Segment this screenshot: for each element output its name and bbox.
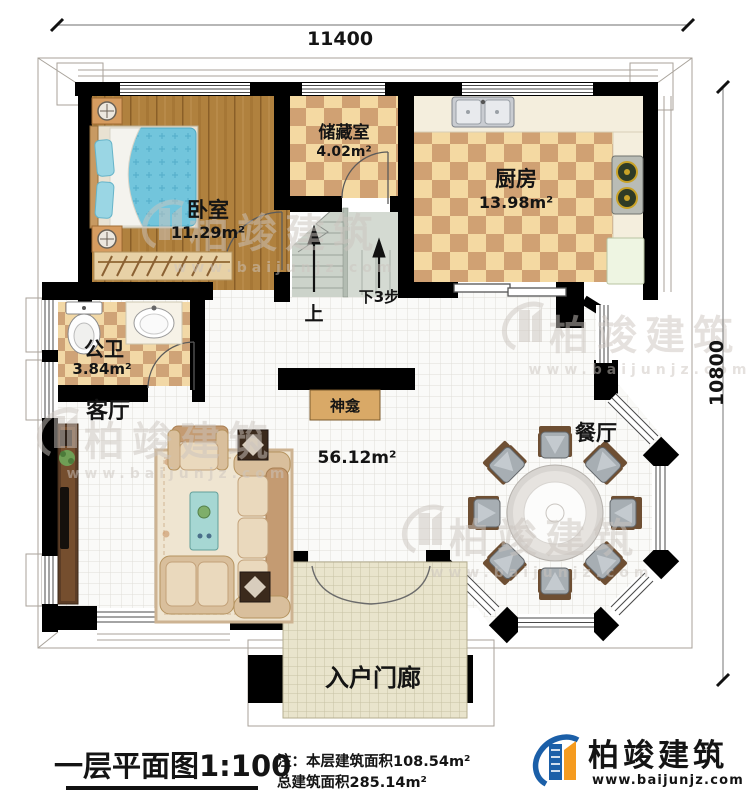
- bathroom-label: 公卫: [84, 337, 124, 361]
- floor-plan-page: 柏竣建筑 www.baijunjz.com 柏竣建筑 www.baijunjz.…: [0, 0, 750, 801]
- side-table: [240, 572, 270, 602]
- note-line2: 总建筑面积285.14m²: [277, 773, 427, 791]
- floor-plan: 柏竣建筑 www.baijunjz.com 柏竣建筑 www.baijunjz.…: [0, 0, 750, 801]
- living-label: 客厅: [86, 398, 130, 424]
- dimension-right: 10800: [706, 81, 729, 686]
- storage-label: 储藏室: [319, 122, 370, 143]
- brand-website: www.baijunjz.com: [592, 773, 744, 788]
- dimension-top: 11400: [51, 19, 694, 50]
- watermark-url: www.baijunjz.com: [174, 260, 397, 276]
- dimension-right-value: 10800: [706, 340, 728, 406]
- watermark: 柏竣建筑 www.baijunjz.com: [39, 410, 289, 482]
- kitchen-sink: [452, 97, 514, 127]
- brand-name: 柏竣建筑: [588, 738, 728, 774]
- watermark-url: www.baijunjz.com: [431, 565, 654, 581]
- fridge: [607, 238, 644, 284]
- bathroom-sink: [126, 302, 182, 344]
- nightstand: [92, 226, 122, 252]
- plan-title-underline: [66, 786, 258, 790]
- bedroom-area: 11.29m²: [171, 223, 245, 242]
- living-area: 56.12m²: [318, 448, 397, 468]
- tv-cabinet: [58, 424, 78, 604]
- storage-area: 4.02m²: [316, 144, 371, 160]
- watermark-text: 柏竣建筑: [449, 516, 641, 562]
- plan-title: 一层平面图1:100: [54, 749, 291, 783]
- watermark-text: 柏竣建筑: [84, 419, 276, 465]
- bedroom-label: 卧室: [187, 198, 229, 222]
- watermark: 柏竣建筑 www.baijunjz.com: [404, 507, 653, 581]
- stairs-up-label: 上: [304, 303, 323, 325]
- note-line1: 注：本层建筑面积108.54m²: [277, 752, 470, 770]
- shrine-label: 神龛: [330, 397, 361, 415]
- porch-floor: [283, 562, 467, 718]
- kitchen-label: 厨房: [495, 167, 537, 191]
- brand-logo-icon: [536, 737, 578, 784]
- dining-label: 餐厅: [575, 421, 617, 445]
- watermark-url: www.baijunjz.com: [67, 466, 290, 482]
- kitchen-area: 13.98m²: [479, 193, 553, 212]
- dimension-top-value: 11400: [307, 28, 373, 50]
- bathroom-area: 3.84m²: [72, 360, 131, 378]
- porch-label: 入户门廊: [325, 664, 421, 692]
- nightstand: [92, 98, 122, 124]
- stove: [612, 156, 643, 214]
- coffee-table: [190, 492, 218, 550]
- stairs-down-label: 下3步: [359, 288, 399, 306]
